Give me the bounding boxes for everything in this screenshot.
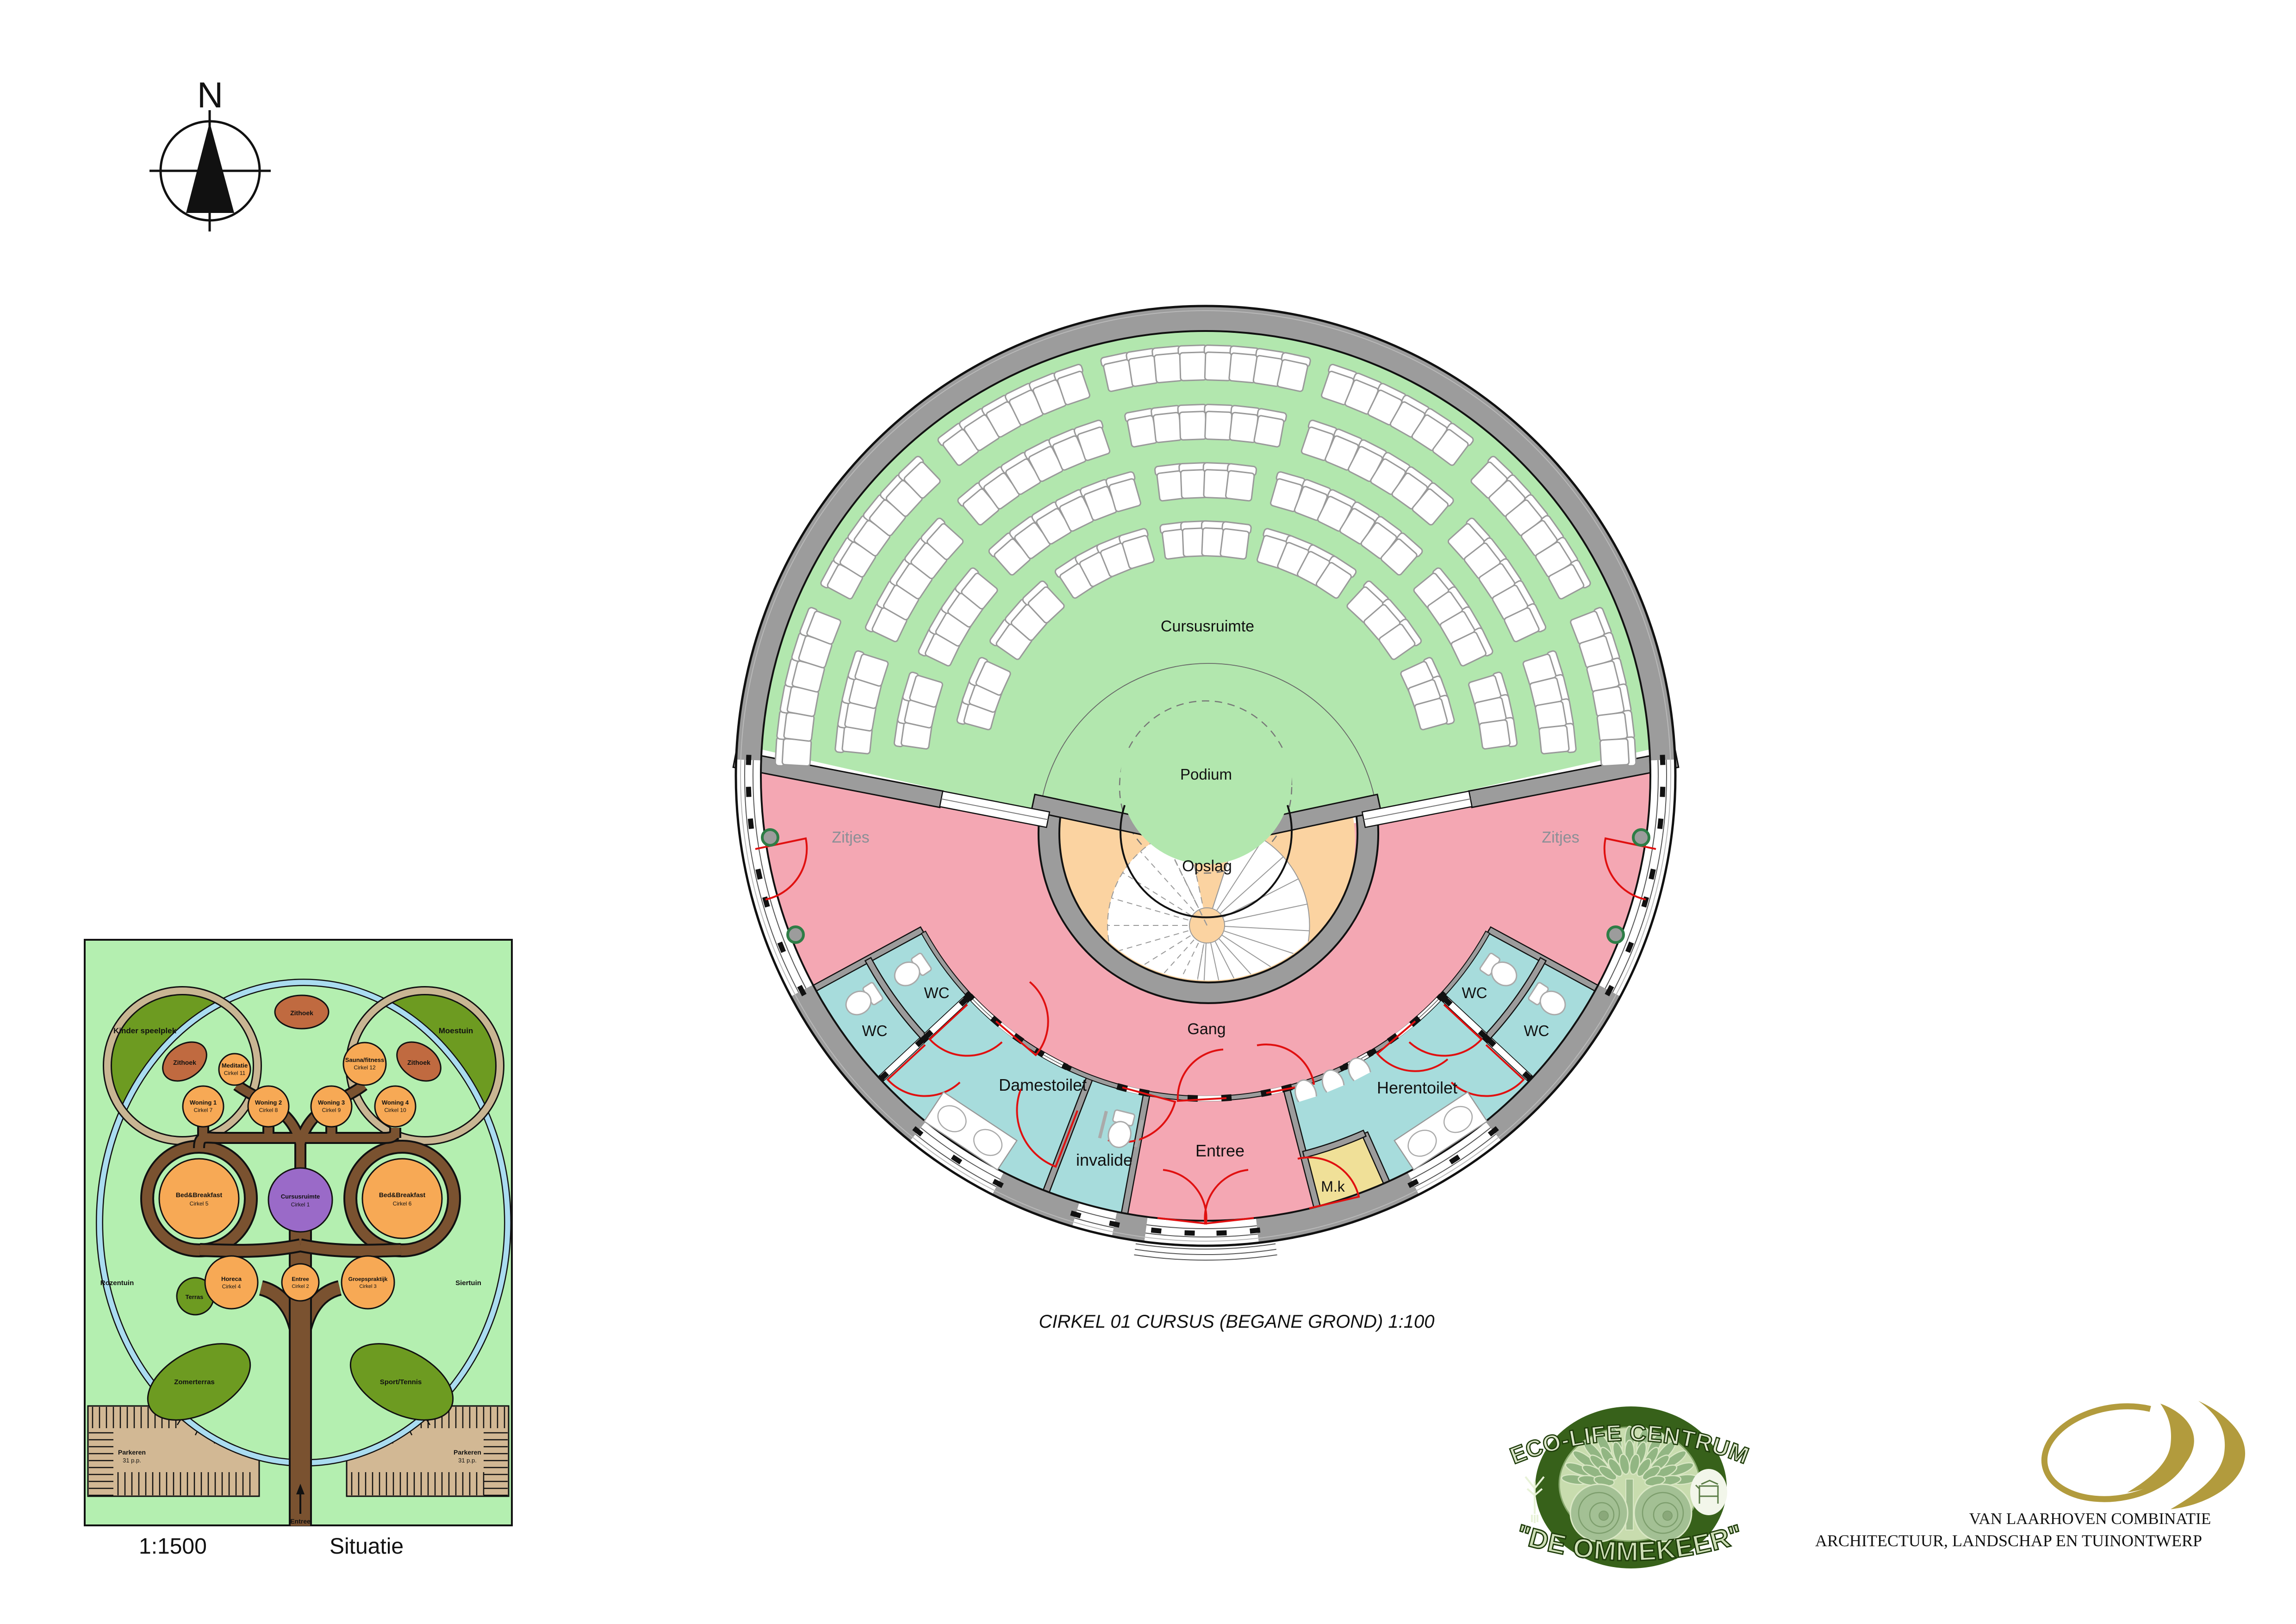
svg-text:Woning 4: Woning 4 xyxy=(382,1099,409,1106)
svg-text:Woning 3: Woning 3 xyxy=(318,1099,345,1106)
svg-text:Terras: Terras xyxy=(186,1293,204,1300)
svg-text:Horeca: Horeca xyxy=(221,1275,242,1282)
svg-text:Rozentuin: Rozentuin xyxy=(100,1279,134,1287)
svg-text:WC: WC xyxy=(1462,984,1487,1001)
svg-text:Entree: Entree xyxy=(290,1518,311,1525)
svg-text:Cirkel 9: Cirkel 9 xyxy=(322,1107,341,1113)
svg-text:Opslag: Opslag xyxy=(1182,857,1232,875)
svg-text:Cirkel 5: Cirkel 5 xyxy=(190,1200,209,1207)
svg-text:Entree: Entree xyxy=(292,1276,309,1282)
svg-text:Damestoilet: Damestoilet xyxy=(999,1075,1087,1094)
svg-text:Zithoek: Zithoek xyxy=(290,1009,313,1017)
svg-text:Podium: Podium xyxy=(1180,766,1232,783)
svg-text:Meditatie: Meditatie xyxy=(222,1062,248,1069)
svg-text:Parkeren: Parkeren xyxy=(118,1449,146,1456)
svg-text:31 p.p.: 31 p.p. xyxy=(458,1457,477,1464)
svg-text:Zitjes: Zitjes xyxy=(1542,829,1579,846)
svg-text:WC: WC xyxy=(1524,1022,1549,1039)
svg-text:Moestuin: Moestuin xyxy=(439,1026,473,1035)
svg-text:1:1500: 1:1500 xyxy=(139,1534,207,1559)
svg-text:Cirkel 1: Cirkel 1 xyxy=(291,1201,310,1208)
svg-text:Bed&Breakfast: Bed&Breakfast xyxy=(176,1191,223,1199)
svg-text:WC: WC xyxy=(862,1022,888,1039)
svg-text:Cursusruimte: Cursusruimte xyxy=(281,1193,320,1200)
svg-text:Cirkel 6: Cirkel 6 xyxy=(393,1200,412,1207)
svg-text:Sport/Tennis: Sport/Tennis xyxy=(380,1378,422,1386)
svg-text:Cirkel 2: Cirkel 2 xyxy=(292,1284,309,1289)
svg-text:Cirkel 11: Cirkel 11 xyxy=(224,1070,246,1076)
svg-text:Siertuin: Siertuin xyxy=(455,1279,481,1287)
svg-text:CIRKEL 01 CURSUS (BEGANE GROND: CIRKEL 01 CURSUS (BEGANE GROND) 1:100 xyxy=(1039,1312,1434,1332)
svg-text:Cirkel 7: Cirkel 7 xyxy=(194,1107,213,1113)
svg-text:Kinder speelplek: Kinder speelplek xyxy=(113,1026,177,1035)
svg-text:Gang: Gang xyxy=(1187,1020,1226,1038)
svg-text:M.k: M.k xyxy=(1321,1178,1345,1195)
svg-text:invalide: invalide xyxy=(1076,1150,1132,1169)
svg-text:Cirkel 12: Cirkel 12 xyxy=(354,1064,376,1071)
svg-text:Bed&Breakfast: Bed&Breakfast xyxy=(379,1191,426,1199)
svg-text:Groepspraktijk: Groepspraktijk xyxy=(348,1276,388,1282)
svg-text:Cursusruimte: Cursusruimte xyxy=(1161,618,1254,635)
svg-text:ARCHITECTUUR, LANDSCHAP EN TUI: ARCHITECTUUR, LANDSCHAP EN TUINONTWERP xyxy=(1815,1531,2202,1550)
svg-text:N: N xyxy=(197,75,223,115)
svg-text:Situatie: Situatie xyxy=(330,1534,404,1559)
svg-text:Cirkel 4: Cirkel 4 xyxy=(222,1283,241,1290)
svg-text:31 p.p.: 31 p.p. xyxy=(123,1457,141,1464)
svg-text:Cirkel 3: Cirkel 3 xyxy=(359,1284,376,1289)
svg-text:Herentoilet: Herentoilet xyxy=(1377,1078,1457,1097)
svg-text:WC: WC xyxy=(924,984,950,1001)
svg-text:Cirkel 10: Cirkel 10 xyxy=(384,1107,406,1113)
svg-text:VAN LAARHOVEN COMBINATIE: VAN LAARHOVEN COMBINATIE xyxy=(1969,1510,2211,1528)
svg-text:Woning 2: Woning 2 xyxy=(255,1099,282,1106)
svg-text:Cirkel 8: Cirkel 8 xyxy=(259,1107,278,1113)
svg-text:Entree: Entree xyxy=(1195,1141,1244,1160)
svg-text:Zithoek: Zithoek xyxy=(173,1059,196,1066)
svg-text:Woning 1: Woning 1 xyxy=(190,1099,217,1106)
svg-text:Zomerterras: Zomerterras xyxy=(174,1378,215,1386)
svg-text:Parkeren: Parkeren xyxy=(454,1449,481,1456)
svg-text:Zitjes: Zitjes xyxy=(832,829,869,846)
svg-text:Zithoek: Zithoek xyxy=(407,1059,430,1066)
svg-text:Sauna/fitness: Sauna/fitness xyxy=(345,1056,385,1063)
